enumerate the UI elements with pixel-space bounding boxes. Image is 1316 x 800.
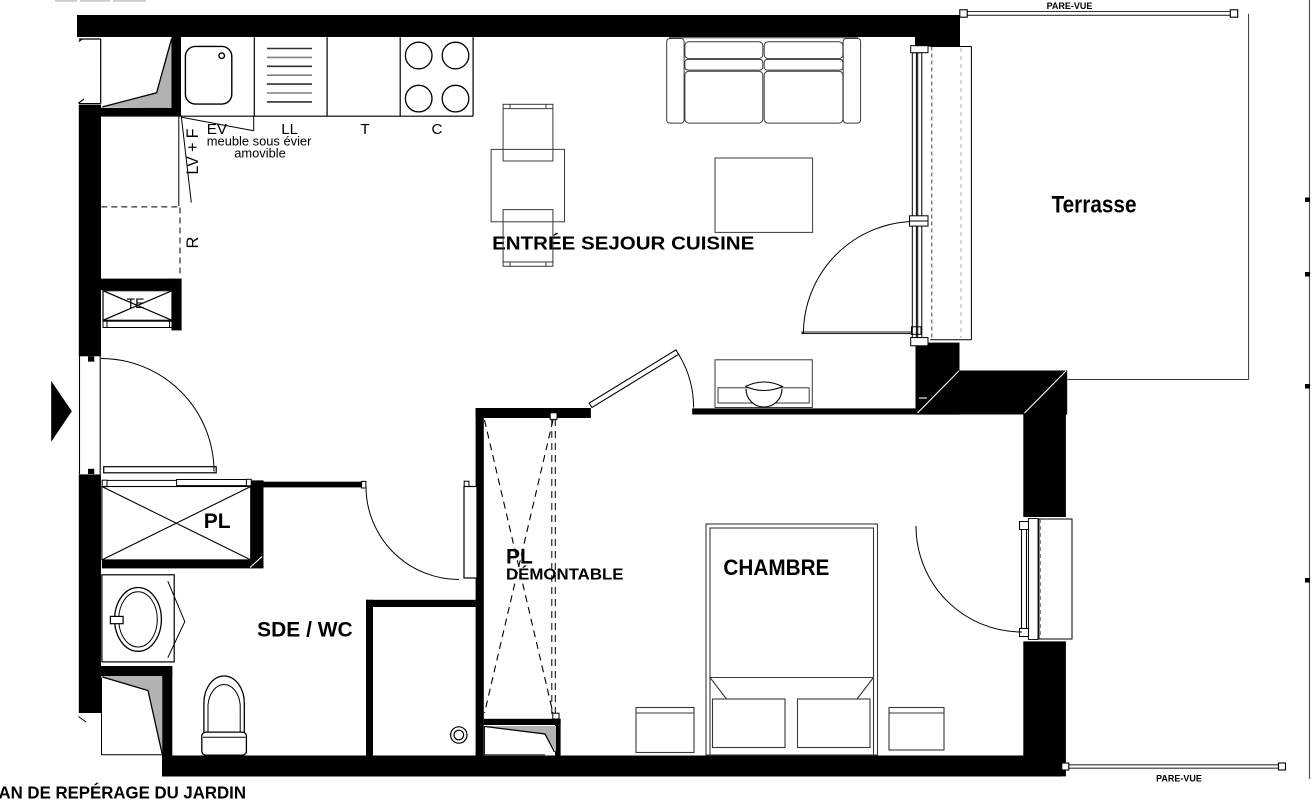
svg-text:TE: TE [127,295,145,311]
svg-text:T: T [360,121,369,138]
svg-text:PLAN DE REPÉRAGE DU JARDIN: PLAN DE REPÉRAGE DU JARDIN [0,781,246,800]
svg-text:DÉMONTABLE: DÉMONTABLE [506,565,624,584]
svg-text:amovible: amovible [234,146,286,161]
svg-text:PARE-VUE: PARE-VUE [1156,774,1202,784]
svg-text:C: C [432,121,443,138]
svg-text:PARE-VUE: PARE-VUE [1047,1,1093,11]
svg-text:Terrasse: Terrasse [1052,191,1137,218]
svg-text:LV + F: LV + F [184,129,202,175]
svg-text:PL: PL [204,510,231,533]
svg-text:R: R [184,236,202,248]
svg-text:PL: PL [506,546,533,569]
svg-text:CHAMBRE: CHAMBRE [723,555,829,580]
svg-text:SDE / WC: SDE / WC [257,619,353,642]
svg-text:ENTRÉE SEJOUR CUISINE: ENTRÉE SEJOUR CUISINE [492,232,754,253]
